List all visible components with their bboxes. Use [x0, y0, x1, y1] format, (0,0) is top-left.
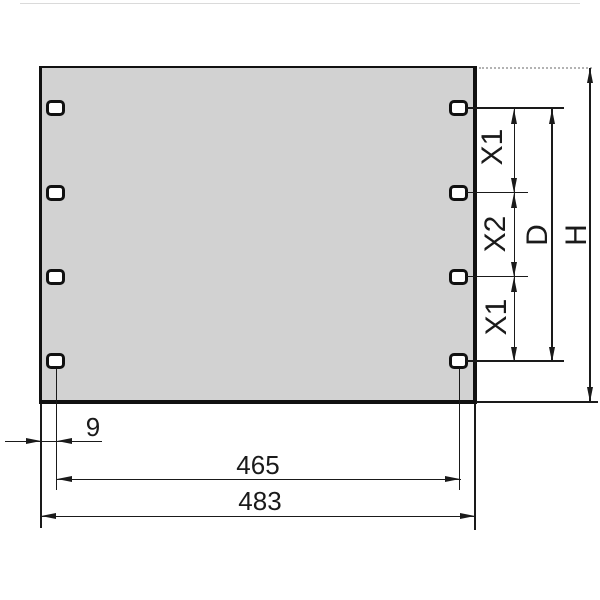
dimension-label-d: D: [523, 224, 553, 246]
mounting-hole-left-4: [46, 353, 65, 369]
extension-left-edge: [40, 404, 42, 528]
arrowhead: [511, 178, 517, 193]
dimension-label-x1-top: X1: [478, 129, 508, 166]
mounting-hole-left-1: [46, 100, 65, 116]
mounting-hole-left-2: [46, 185, 65, 201]
dimension-label-h: H: [562, 224, 592, 246]
extension-left-hole-center: [56, 369, 58, 490]
bottom-edge-extension-line: [476, 401, 598, 403]
mounting-hole-left-3: [46, 269, 65, 285]
dimension-label-x2: X2: [481, 216, 511, 253]
arrowhead: [41, 513, 56, 519]
arrowhead: [511, 262, 517, 277]
arrowhead: [587, 68, 593, 83]
dimension-line-x1-x2: [514, 109, 516, 362]
arrowhead: [445, 476, 460, 482]
dimension-label-483: 483: [238, 488, 281, 514]
frame-line: [20, 3, 580, 4]
arrowhead: [460, 513, 475, 519]
leader-row-3: [466, 276, 528, 278]
arrowhead: [549, 109, 555, 124]
extension-right-hole-center: [459, 369, 461, 490]
arrowhead: [511, 277, 517, 292]
panel-body: [39, 66, 477, 404]
arrowhead: [511, 109, 517, 124]
leader-row-2: [466, 192, 528, 194]
drawing-canvas: X1 X2 X1 D H 9 465 483: [0, 0, 600, 600]
arrowhead: [57, 438, 72, 444]
top-edge-extension-line: [479, 67, 592, 69]
arrowhead: [549, 347, 555, 362]
arrowhead: [57, 476, 72, 482]
arrowhead: [511, 347, 517, 362]
extension-right-edge: [474, 404, 476, 530]
dimension-label-465: 465: [236, 452, 279, 478]
dimension-label-x1-bottom: X1: [482, 299, 512, 336]
arrowhead: [511, 193, 517, 208]
arrowhead: [26, 438, 41, 444]
arrowhead: [587, 387, 593, 402]
dimension-label-9: 9: [86, 414, 100, 440]
